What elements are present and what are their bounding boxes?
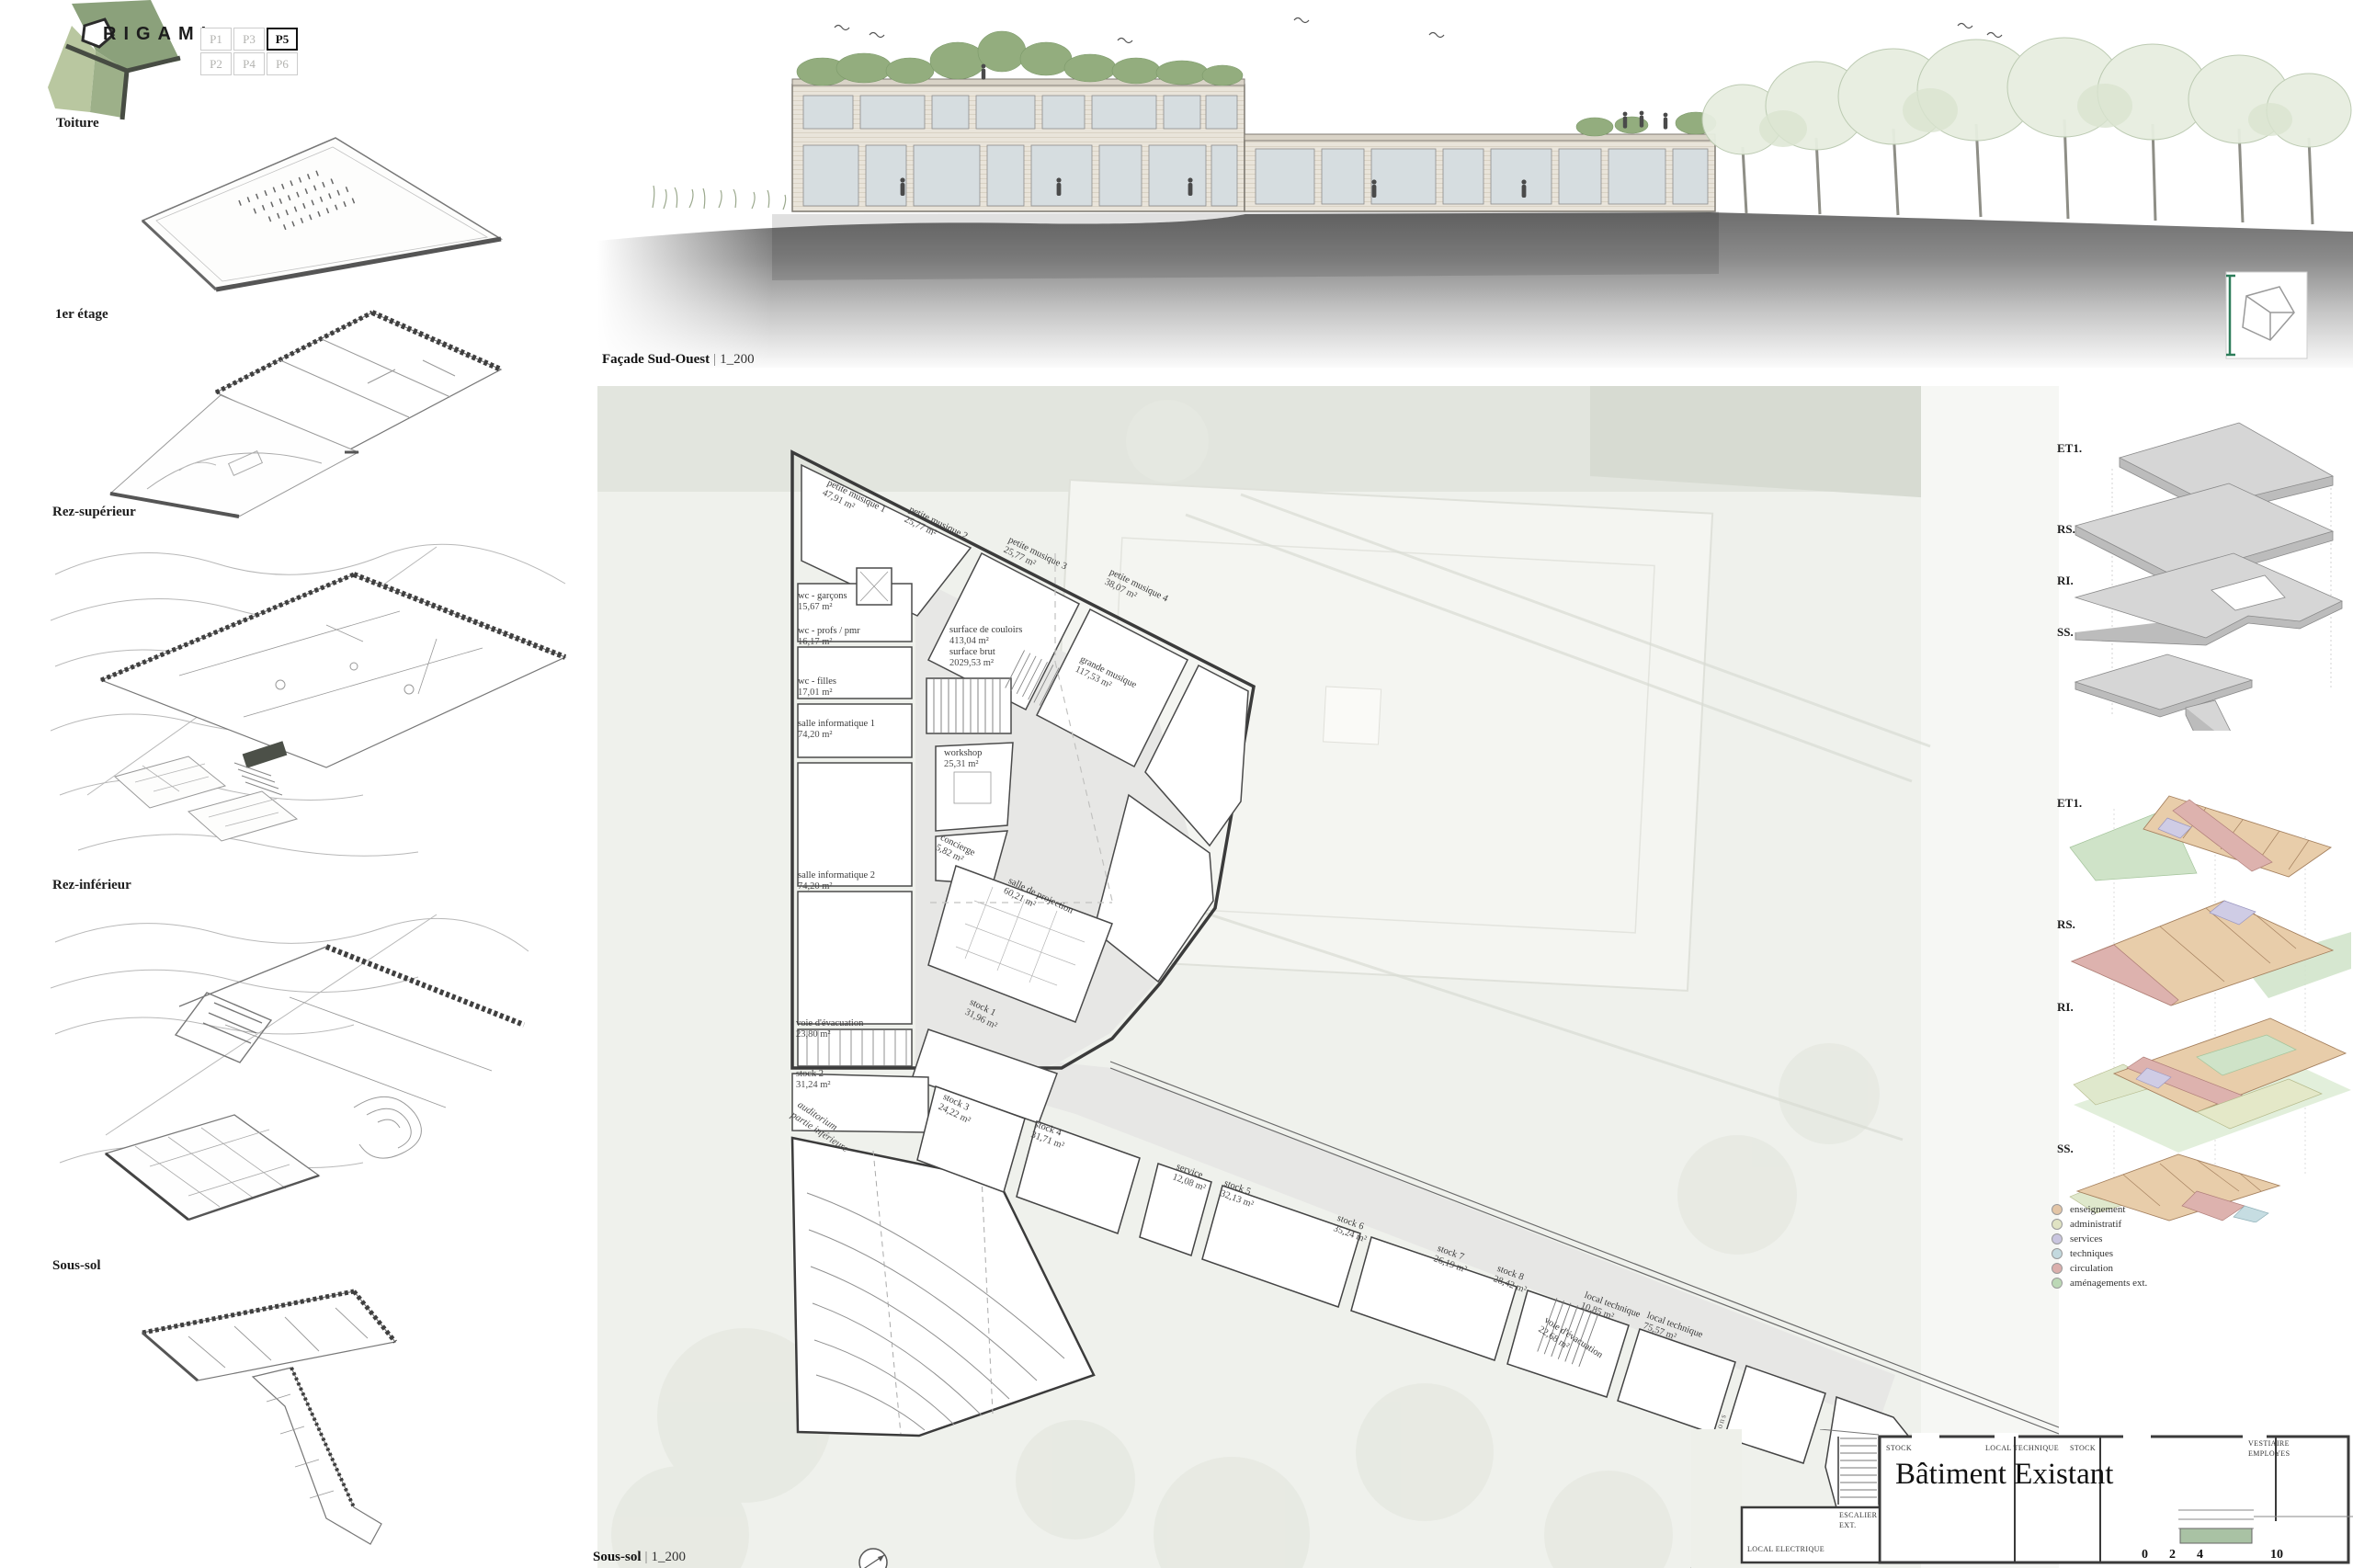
axon-rez-inferieur-drawing bbox=[51, 896, 529, 1262]
page-navigation: P1P3P5P2P4P6 bbox=[200, 28, 298, 75]
legend-color-dot bbox=[2052, 1233, 2063, 1244]
origami-logo-icon bbox=[37, 0, 202, 124]
axon-level-label: RS. bbox=[2057, 522, 2075, 537]
legend-color-dot bbox=[2052, 1278, 2063, 1289]
legend-item: enseignement bbox=[2052, 1202, 2147, 1217]
facade-keyplan-icon bbox=[2226, 272, 2307, 358]
logo-wordmark: RIGAMI bbox=[103, 24, 213, 45]
scale-tick: 10 bbox=[2270, 1548, 2283, 1562]
floor-label: Rez-inférieur bbox=[52, 878, 131, 893]
floor-label: Toiture bbox=[56, 116, 99, 131]
axon-level-label: RI. bbox=[2057, 574, 2074, 588]
program-legend: enseignement administratif services tech… bbox=[2052, 1202, 2147, 1290]
facade-elevation-drawing bbox=[597, 0, 2353, 368]
existing-building-title: Bâtiment Existant bbox=[1895, 1458, 2113, 1492]
existing-room-label: STOCK bbox=[1886, 1444, 1912, 1452]
facade-caption: Façade Sud-Ouest|1_200 bbox=[602, 352, 755, 368]
exploded-axon-colored-drawing bbox=[2059, 781, 2353, 1222]
page-tab[interactable]: P1 bbox=[200, 28, 232, 51]
presentation-board: RIGAMI P1P3P5P2P4P6 Toiture1er étageRez-… bbox=[0, 0, 2353, 1568]
legend-item: services bbox=[2052, 1232, 2147, 1246]
axon-level-label: SS. bbox=[2057, 1142, 2074, 1156]
axon-level-label: RI. bbox=[2057, 1000, 2074, 1015]
legend-item: techniques bbox=[2052, 1246, 2147, 1261]
axon-level-label: ET1. bbox=[2057, 796, 2082, 811]
existing-room-label: EXT. bbox=[1839, 1521, 1857, 1529]
legend-color-dot bbox=[2052, 1204, 2063, 1215]
page-tab[interactable]: P3 bbox=[233, 28, 265, 51]
page-tab[interactable]: P6 bbox=[267, 52, 298, 75]
existing-room-label: EMPLOYES bbox=[2248, 1449, 2290, 1458]
existing-room-label: STOCK bbox=[2070, 1444, 2096, 1452]
plan-caption: Sous-sol|1_200 bbox=[593, 1550, 686, 1565]
scale-tick: 2 bbox=[2169, 1548, 2176, 1562]
axon-level-label: ET1. bbox=[2057, 441, 2082, 456]
legend-color-dot bbox=[2052, 1263, 2063, 1274]
axon-sous-sol-drawing bbox=[78, 1278, 446, 1564]
existing-room-label: LOCAL TECHNIQUE bbox=[1985, 1444, 2059, 1452]
existing-room-label: VESTIAIRE bbox=[2248, 1439, 2290, 1448]
legend-color-dot bbox=[2052, 1219, 2063, 1230]
page-tab[interactable]: P2 bbox=[200, 52, 232, 75]
axon-level-label: RS. bbox=[2057, 917, 2075, 932]
legend-color-dot bbox=[2052, 1248, 2063, 1259]
legend-item: aménagements ext. bbox=[2052, 1276, 2147, 1290]
axon-toiture-drawing bbox=[129, 129, 515, 303]
existing-room-label: ESCALIER bbox=[1839, 1511, 1877, 1519]
axon-level-label: SS. bbox=[2057, 625, 2074, 640]
axon-rez-superieur-drawing bbox=[51, 519, 579, 878]
scale-tick: 4 bbox=[2197, 1548, 2203, 1562]
page-tab[interactable]: P4 bbox=[233, 52, 265, 75]
axon-1er-etage-drawing bbox=[92, 296, 515, 526]
legend-item: administratif bbox=[2052, 1217, 2147, 1232]
scale-tick: 0 bbox=[2142, 1548, 2148, 1562]
page-tab[interactable]: P5 bbox=[267, 28, 298, 51]
existing-room-label: LOCAL ELECTRIQUE bbox=[1747, 1545, 1824, 1553]
legend-item: circulation bbox=[2052, 1261, 2147, 1276]
exploded-axon-grey-drawing bbox=[2059, 414, 2353, 731]
sous-sol-plan-drawing bbox=[597, 386, 2059, 1568]
